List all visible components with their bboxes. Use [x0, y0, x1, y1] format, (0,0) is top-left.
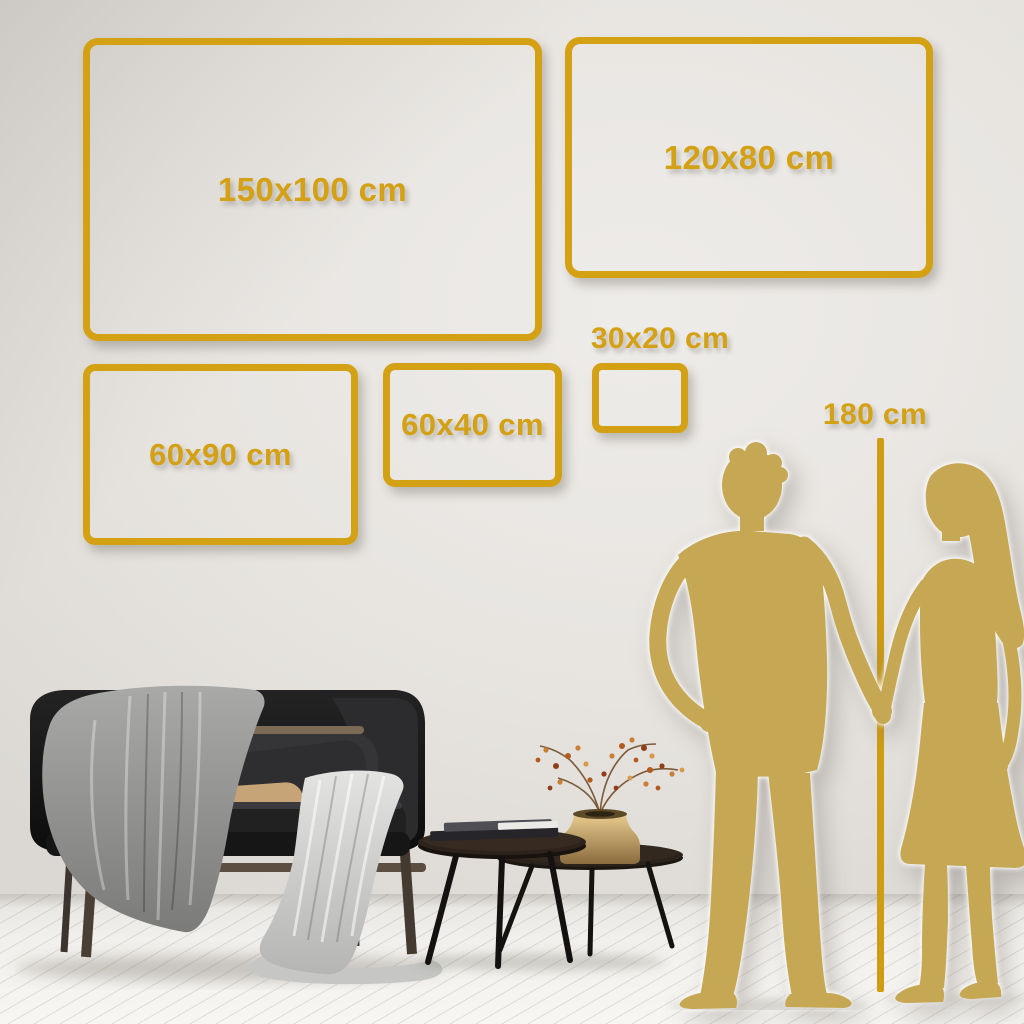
- size-label-60x90: 60x90 cm: [90, 371, 351, 538]
- couple-silhouette: [630, 437, 1024, 1010]
- size-label-120x80: 120x80 cm: [572, 44, 926, 271]
- man-silhouette: [658, 442, 892, 1009]
- size-frame-30x20: [592, 363, 688, 433]
- tables-floor-shadow: [415, 953, 665, 971]
- size-label-30x20: 30x20 cm: [560, 322, 760, 356]
- height-label: 180 cm: [795, 398, 955, 432]
- size-frame-150x100: 150x100 cm: [83, 38, 542, 341]
- size-frame-60x90: 60x90 cm: [83, 364, 358, 545]
- size-frame-60x40: 60x40 cm: [383, 363, 562, 487]
- size-label-150x100: 150x100 cm: [90, 45, 535, 334]
- size-label-60x40: 60x40 cm: [390, 370, 555, 480]
- gray-blanket: [42, 686, 264, 932]
- size-frame-120x80: 120x80 cm: [565, 37, 933, 278]
- woman-silhouette: [875, 463, 1024, 1003]
- size-guide-scene: 150x100 cm 120x80 cm 60x90 cm 60x40 cm 3…: [0, 0, 1024, 1024]
